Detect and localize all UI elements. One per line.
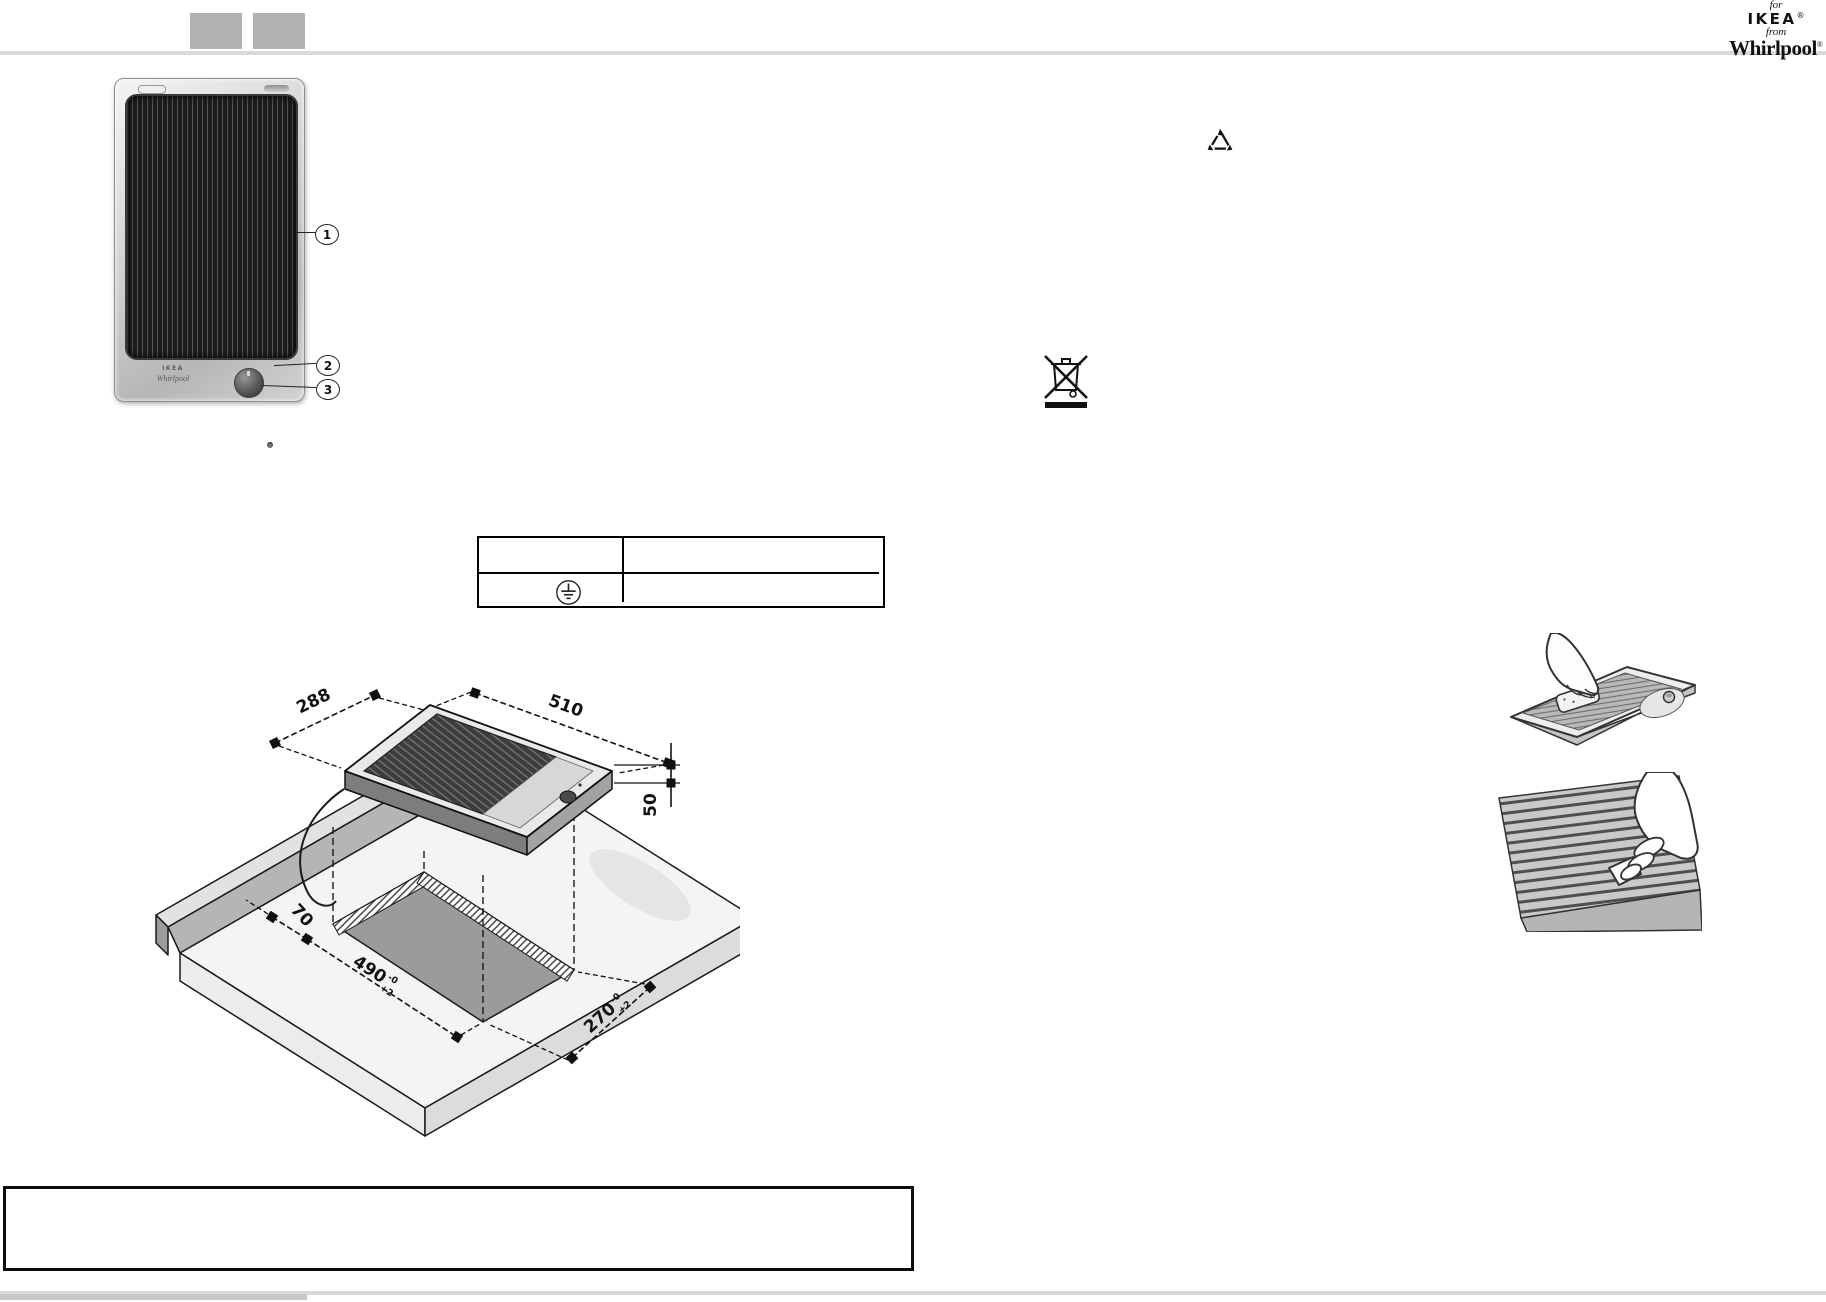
- dim-50: 50: [641, 793, 661, 817]
- hob-vent-slot-left: [138, 85, 166, 94]
- hob-grill-plate: [125, 94, 298, 360]
- dim-288: 288: [293, 685, 334, 719]
- registered-mark: ®: [1817, 40, 1823, 49]
- note-box: [3, 1186, 914, 1271]
- page-nav-square-2: [253, 13, 305, 49]
- registered-mark: ®: [1797, 11, 1805, 20]
- hob-vent-slot-right: [264, 85, 289, 92]
- footer-rule-left: [0, 1294, 307, 1300]
- table-row-divider: [479, 572, 879, 574]
- hob-product-photo: IKEA Whirlpool: [114, 78, 305, 402]
- hob-brand-text: IKEA Whirlpool: [143, 365, 203, 383]
- weee-bin-icon: [1042, 350, 1092, 410]
- recycle-icon: [1206, 127, 1234, 153]
- cleaning-scraper-illustration: [1497, 772, 1702, 932]
- callout-2: 2: [316, 355, 340, 376]
- cleaning-sponge-illustration: [1497, 633, 1709, 751]
- callout-3: 3: [316, 379, 340, 400]
- weee-bar: [1045, 402, 1087, 408]
- page-nav-square-1: [190, 13, 242, 49]
- knob-marker: [247, 371, 250, 376]
- callout-line-1: [296, 232, 316, 233]
- hob-brand-ikea: IKEA: [143, 365, 203, 372]
- diagram-knob: [560, 791, 576, 803]
- logo-whirlpool: Whirlpool®: [1718, 38, 1826, 59]
- callout-1: 1: [315, 224, 339, 245]
- hob-control-knob: [234, 368, 264, 398]
- logo-ikea: IKEA®: [1718, 12, 1826, 27]
- header-rule: [0, 51, 1826, 55]
- hob-indicator-light: [267, 442, 273, 448]
- ikea-whirlpool-logo: for IKEA® from Whirlpool®: [1718, 0, 1826, 59]
- hob-brand-whirlpool: Whirlpool: [143, 374, 203, 383]
- installation-diagram: 288 510 50 70 490-0+2 270-0+2: [140, 575, 740, 1190]
- manual-page: for IKEA® from Whirlpool® IKEA Whirlpool…: [0, 0, 1826, 1302]
- dim-510: 510: [546, 691, 586, 722]
